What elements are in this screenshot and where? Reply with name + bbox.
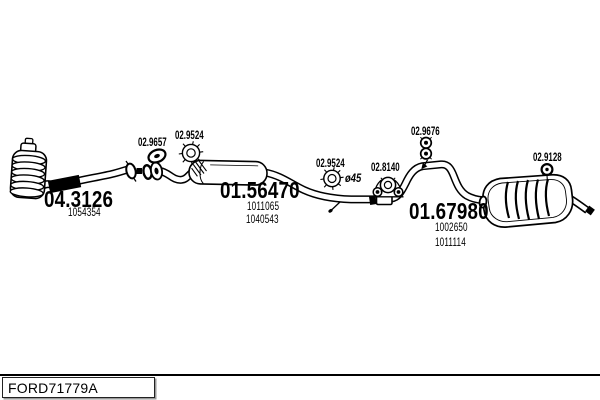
- rubber-mount-ref-label: 02.8140: [371, 161, 400, 173]
- clamp-icon: [320, 167, 343, 190]
- rear-muffler-number-2: 1011114: [435, 236, 466, 248]
- rear-muffler-number-1: 1002650: [435, 221, 468, 233]
- clamp-diameter-note: ø45: [345, 174, 361, 186]
- over-axle-pipe-drawing: [391, 164, 483, 200]
- front-pipe-number: 1054354: [68, 206, 101, 218]
- catalytic-converter-drawing: [10, 137, 48, 199]
- footer-divider: [0, 374, 600, 376]
- sensor-stub: [332, 202, 341, 210]
- mid-clamp-ref-label: 02.9524: [316, 157, 345, 169]
- gasket-ring-icon: [147, 147, 168, 165]
- rear-muffler-drawing: [479, 172, 573, 227]
- exhaust-diagram-canvas: 02.9657 02.9524 02.9524 ø45 02.8140 02.9…: [0, 0, 600, 400]
- flange-joint-drawing: [125, 161, 164, 182]
- rubber-mount-icon: [373, 177, 404, 196]
- gasket-ref-label: 02.9657: [138, 136, 167, 148]
- diagram-code-box: FORD71779A: [2, 377, 155, 398]
- center-muffler-number-2: 1040543: [246, 213, 279, 225]
- diagram-code: FORD71779A: [8, 380, 98, 396]
- hanger-ref-label: 02.9676: [411, 125, 440, 137]
- front-clamp-ref-label: 02.9524: [175, 129, 204, 141]
- center-muffler-number-1: 1011065: [247, 200, 279, 212]
- tail-washer-ref-label: 02.9128: [533, 151, 562, 163]
